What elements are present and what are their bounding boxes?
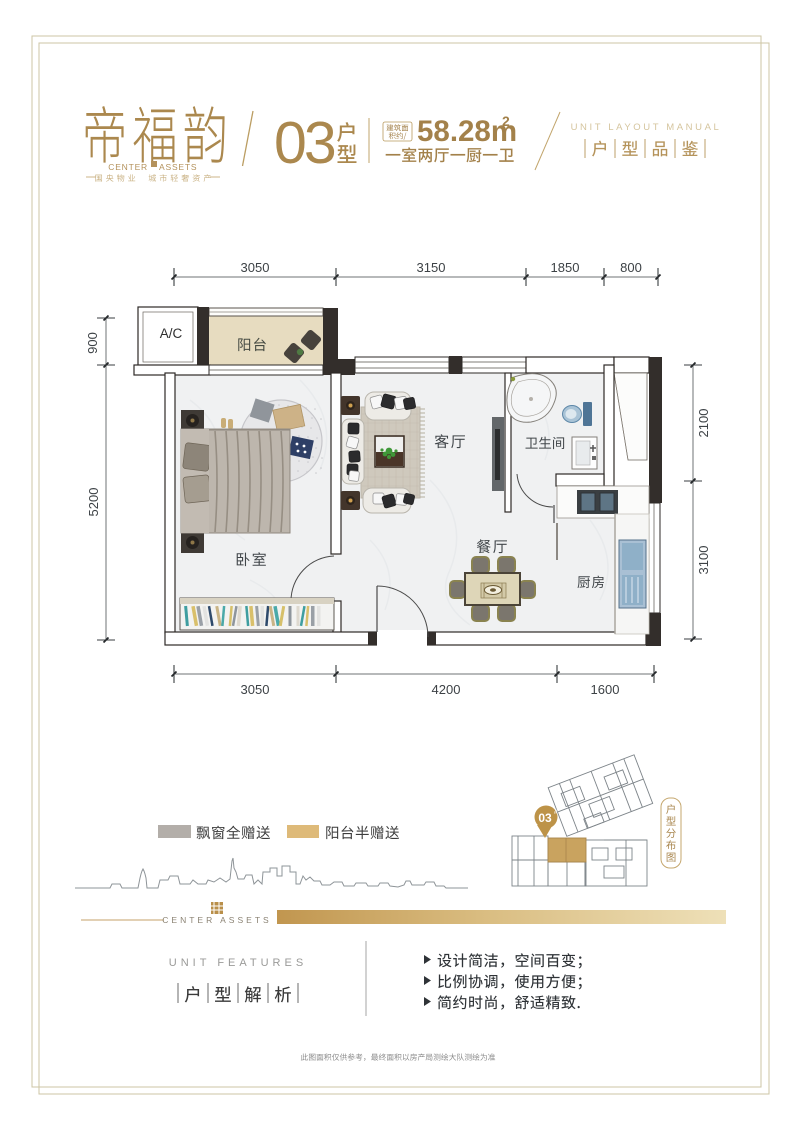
svg-text:4200: 4200 xyxy=(432,682,461,697)
svg-text:1600: 1600 xyxy=(591,682,620,697)
svg-text:5200: 5200 xyxy=(86,488,101,517)
svg-text:CENTER ASSETS: CENTER ASSETS xyxy=(162,915,271,925)
svg-text:A/C: A/C xyxy=(160,326,183,341)
svg-text:3050: 3050 xyxy=(241,260,270,275)
svg-text:UNIT FEATURES: UNIT FEATURES xyxy=(169,957,307,969)
svg-text:3100: 3100 xyxy=(696,546,711,575)
svg-text:1850: 1850 xyxy=(551,260,580,275)
svg-text:03: 03 xyxy=(538,811,552,825)
svg-text:03: 03 xyxy=(274,110,335,176)
svg-text:2100: 2100 xyxy=(696,409,711,438)
svg-text:900: 900 xyxy=(85,332,100,354)
svg-text:ASSETS: ASSETS xyxy=(159,162,197,172)
svg-text:CENTER: CENTER xyxy=(108,162,148,172)
svg-text:3150: 3150 xyxy=(417,260,446,275)
svg-text:3050: 3050 xyxy=(241,682,270,697)
svg-text:800: 800 xyxy=(620,260,642,275)
svg-text:UNIT LAYOUT MANUAL: UNIT LAYOUT MANUAL xyxy=(571,122,722,133)
svg-text:2: 2 xyxy=(502,113,510,129)
